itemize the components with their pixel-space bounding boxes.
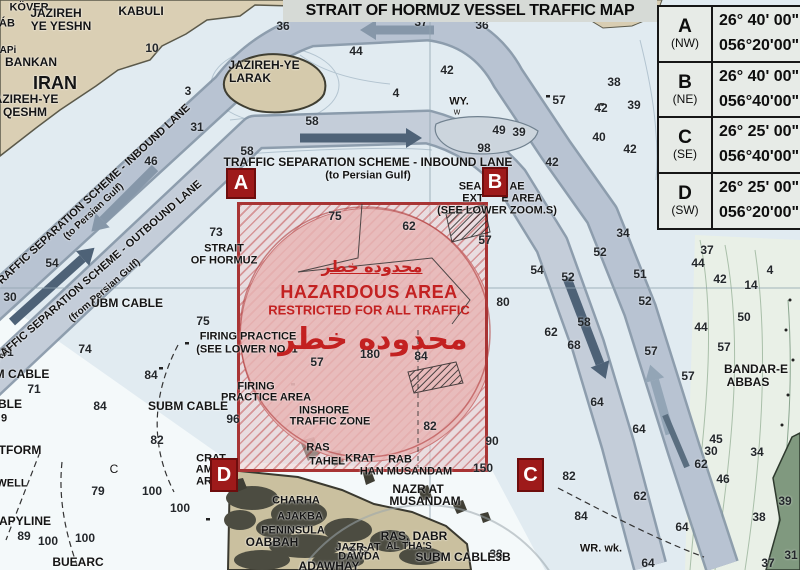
depth-sounding: 46 <box>716 473 729 485</box>
depth-sounding: 42 <box>594 102 607 114</box>
depth-sounding: 100 <box>170 502 190 514</box>
map-label: QESHM <box>3 106 47 118</box>
depth-sounding: 54 <box>45 257 58 269</box>
depth-sounding: 62 <box>402 220 415 232</box>
depth-sounding: 44 <box>691 257 704 269</box>
depth-sounding: 62 <box>633 490 646 502</box>
table-row: A (NW) 26° 40' 00" 056°20'00" <box>657 5 800 63</box>
cable-label: UBM CABLE <box>91 297 163 309</box>
depth-sounding: 71 <box>27 383 40 395</box>
depth-sounding: 100 <box>75 532 95 544</box>
depth-sounding: 58 <box>577 316 590 328</box>
map-label: BUEARC <box>52 556 103 568</box>
depth-sounding: 44 <box>349 45 362 57</box>
map-label: ÁB <box>0 19 15 30</box>
corner-marker-c: C <box>517 458 544 492</box>
map-label: (to Persian Gulf) <box>325 171 411 182</box>
depth-sounding: 57 <box>310 356 323 368</box>
depth-sounding: 64 <box>590 396 603 408</box>
depth-sounding: 39 <box>627 99 640 111</box>
map-label: (SEE LOWER ZOOM.S) <box>437 206 557 217</box>
depth-sounding: 58 <box>305 115 318 127</box>
depth-sounding: 31 <box>784 549 797 561</box>
depth-sounding: 38 <box>607 76 620 88</box>
corner-marker-a: A <box>226 168 256 199</box>
depth-sounding: 30 <box>3 291 16 303</box>
map-label: TAHEL <box>309 457 345 468</box>
map-label: OABBAH <box>246 536 299 548</box>
depth-sounding: 82 <box>150 434 163 446</box>
map-label: CHARHA <box>272 496 320 507</box>
depth-sounding: 62 <box>544 326 557 338</box>
map-label: EXT <box>462 194 483 205</box>
map-label: TRAFFIC ZONE <box>290 417 371 428</box>
depth-sounding: 68 <box>567 339 580 351</box>
depth-sounding: 3 <box>185 85 192 97</box>
country-label-iran: IRAN <box>33 74 77 92</box>
depth-sounding: 80 <box>496 296 509 308</box>
depth-sounding: 64 <box>641 557 654 569</box>
longitude: 056°40'00" <box>719 145 800 170</box>
point-id: D <box>678 184 692 203</box>
map-label: ABBAS <box>727 376 770 388</box>
depth-sounding: 52 <box>561 271 574 283</box>
depth-sounding: 75 <box>196 315 209 327</box>
depth-sounding: 57 <box>644 345 657 357</box>
map-label: LARAK <box>229 72 271 84</box>
depth-sounding: 54 <box>530 264 543 276</box>
depth-sounding: 84 <box>93 400 106 412</box>
depth-sounding: 31 <box>190 121 203 133</box>
map-label: APYLINE <box>0 515 51 527</box>
corner-marker-d: D <box>210 458 238 492</box>
depth-sounding: 74 <box>78 343 91 355</box>
depth-sounding: 90 <box>485 435 498 447</box>
strait-of-hormuz-label: STRAIT <box>204 244 244 255</box>
depth-sounding: 34 <box>616 227 629 239</box>
map-label: AZIREH-YE <box>0 93 58 105</box>
depth-sounding: 89 <box>17 530 30 542</box>
map-label: AE <box>509 182 524 193</box>
cable-label: SUBM CABLE <box>148 400 228 412</box>
longitude: 056°20'00" <box>719 201 800 226</box>
depth-sounding: 150 <box>473 462 493 474</box>
depth-sounding: 42 <box>623 143 636 155</box>
map-label: ADAWHAY <box>299 560 360 570</box>
point-id: B <box>678 73 692 92</box>
depth-sounding: 64 <box>675 521 688 533</box>
map-label: BLE <box>0 398 22 410</box>
wreck-label: WR. wk. <box>580 544 622 555</box>
map-label: WELL <box>0 479 28 490</box>
table-row: B (NE) 26° 40' 00" 056°40'00" <box>657 61 800 119</box>
depth-sounding: 100 <box>142 485 162 497</box>
point-corner: (SE) <box>673 147 697 161</box>
coordinate-table: A (NW) 26° 40' 00" 056°20'00" B (NE) 26°… <box>657 5 800 230</box>
map-label: HAN MUSANDAM <box>360 467 452 478</box>
map-label: w <box>454 108 461 117</box>
depth-sounding: 98 <box>477 142 490 154</box>
depth-sounding: 46 <box>144 155 157 167</box>
depth-sounding: 49 <box>492 124 505 136</box>
longitude: 056°40'00" <box>719 90 800 115</box>
hazard-label-persian-large: محدوده خطر <box>278 325 467 355</box>
point-corner: (NE) <box>673 92 698 106</box>
map-label: BANKAN <box>5 56 57 68</box>
hazard-label-restriction: RESTRICTED FOR ALL TRAFFIC <box>268 304 470 317</box>
depth-sounding: 96 <box>226 413 239 425</box>
map-label: TFORM <box>0 444 41 456</box>
hazard-label-english: HAZARDOUS AREA <box>280 283 457 301</box>
longitude: 056°20'00" <box>719 34 800 59</box>
inbound-lane-label: TRAFFIC SEPARATION SCHEME - INBOUND LANE <box>224 156 513 168</box>
depth-sounding: 52 <box>638 295 651 307</box>
depth-sounding: 100 <box>38 535 58 547</box>
point-corner: (NW) <box>671 36 699 50</box>
depth-sounding: 82 <box>562 470 575 482</box>
map-title: STRAIT OF HORMUZ VESSEL TRAFFIC MAP <box>283 0 657 22</box>
depth-sounding: 4 <box>393 87 400 99</box>
depth-sounding: 79 <box>91 485 104 497</box>
depth-sounding: 57 <box>717 341 730 353</box>
depth-sounding: 14 <box>744 279 757 291</box>
table-row: D (SW) 26° 25' 00" 056°20'00" <box>657 172 800 230</box>
bandar-e-abbas-label: BANDAR-E <box>724 363 788 375</box>
map-label: M CABLE <box>0 368 49 380</box>
depth-sounding: 50 <box>737 311 750 323</box>
island-label-larak: JAZIREH-YE <box>228 59 299 71</box>
map-label: JAZIREH <box>30 7 81 19</box>
cable-label: SUBM CABLE3B <box>415 551 510 563</box>
depth-sounding: 42 <box>440 64 453 76</box>
depth-sounding: 75 <box>328 210 341 222</box>
depth-sounding: 84 <box>144 369 157 381</box>
depth-sounding: 84 <box>574 510 587 522</box>
map-label: AL THA'S <box>386 542 432 552</box>
latitude: 26° 25' 00" <box>719 176 800 201</box>
depth-sounding: 82 <box>423 420 436 432</box>
depth-sounding: 42 <box>545 156 558 168</box>
point-id: A <box>678 17 692 36</box>
map-label: C <box>110 463 119 475</box>
depth-sounding: 10 <box>145 42 158 54</box>
depth-sounding: 57 <box>552 94 565 106</box>
depth-sounding: 34 <box>750 446 763 458</box>
depth-sounding: 39 <box>512 126 525 138</box>
map-label: RAS <box>306 443 329 454</box>
latitude: 26° 40' 00" <box>719 65 800 90</box>
depth-sounding: 42 <box>713 273 726 285</box>
table-row: C (SE) 26° 25' 00" 056°40'00" <box>657 116 800 174</box>
latitude: 26° 40' 00" <box>719 9 800 34</box>
map-label: YE YESHN <box>31 20 91 32</box>
map-label: MUSANDAM <box>389 495 460 507</box>
point-id: C <box>678 128 692 147</box>
depth-sounding: 44 <box>694 321 707 333</box>
depth-sounding: 51 <box>633 268 646 280</box>
map-label: 9 <box>1 414 7 425</box>
map-label: KABULI <box>118 5 163 17</box>
hazard-label-persian-small: محدوده خطر <box>322 259 423 275</box>
map-label: RAB <box>388 455 412 466</box>
depth-sounding: 57 <box>478 234 491 246</box>
depth-sounding: 73 <box>209 226 222 238</box>
vessel-traffic-map: 3637361034444257384239404249399858584231… <box>0 0 800 570</box>
depth-sounding: 40 <box>592 131 605 143</box>
depth-sounding: 52 <box>593 246 606 258</box>
depth-sounding: 38 <box>752 511 765 523</box>
depth-sounding: 62 <box>694 458 707 470</box>
depth-sounding: 39 <box>778 495 791 507</box>
corner-marker-b: B <box>482 167 508 197</box>
map-label: SEA <box>459 182 482 193</box>
map-label: KRAT <box>345 454 375 465</box>
map-label: AJAKBA <box>277 512 323 523</box>
point-corner: (SW) <box>671 203 698 217</box>
depth-sounding: 57 <box>681 370 694 382</box>
latitude: 26° 25' 00" <box>719 120 800 145</box>
depth-sounding: 30 <box>704 445 717 457</box>
depth-sounding: 64 <box>632 423 645 435</box>
depth-sounding: 4 <box>767 264 774 276</box>
depth-sounding: 37 <box>700 244 713 256</box>
map-label: OF HORMUZ <box>191 256 258 267</box>
map-label: PRACTICE AREA <box>221 393 311 404</box>
depth-sounding: 37 <box>761 557 774 569</box>
